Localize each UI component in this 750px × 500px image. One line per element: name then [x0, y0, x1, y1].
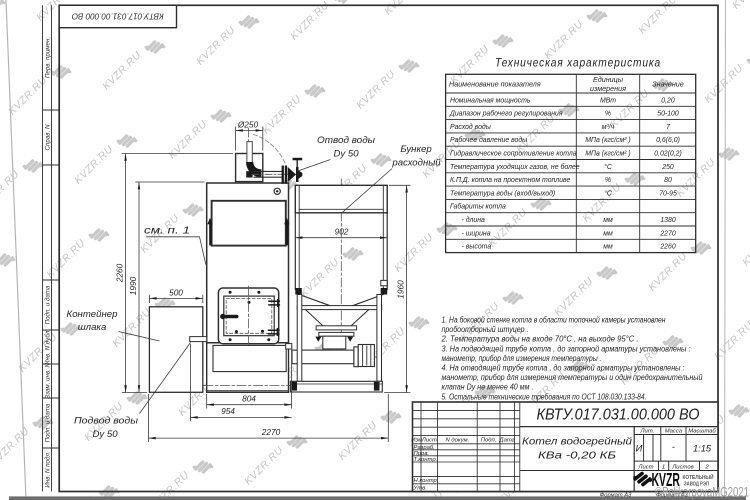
svg-text:KVZR.RU: KVZR.RU: [298, 256, 342, 300]
svg-text:Техническая характеристика: Техническая характеристика: [495, 56, 661, 70]
svg-text:Диапазон рабочего регулировани: Диапазон рабочего регулирования: [449, 110, 563, 118]
svg-text:KVZR.RU: KVZR.RU: [354, 68, 398, 112]
svg-text:1. На боковой стенке котла в: 1. На боковой стенке котла в области топ…: [442, 316, 667, 325]
svg-text:Расход воды: Расход воды: [450, 123, 491, 131]
svg-text:Контейнер: Контейнер: [67, 309, 119, 320]
svg-text:2: 2: [704, 464, 709, 470]
svg-text:Отвод воды: Отвод воды: [317, 135, 375, 146]
svg-text:©PolikarpovaMG2021: ©PolikarpovaMG2021: [655, 485, 749, 500]
svg-text:Утв.: Утв.: [413, 485, 427, 491]
svg-text:°С: °С: [604, 189, 613, 197]
svg-text:Справ. N: Справ. N: [45, 124, 52, 150]
svg-text:- высота: - высота: [462, 244, 492, 251]
svg-text:250: 250: [661, 164, 674, 171]
svg-text:Наименование показателя: Наименование показателя: [449, 80, 541, 89]
svg-text:KVZR.RU: KVZR.RU: [0, 425, 32, 469]
svg-text:2270: 2270: [261, 427, 281, 437]
svg-text:м³/ч: м³/ч: [602, 124, 615, 131]
svg-text:расходный: расходный: [391, 157, 441, 168]
svg-text:КВТУ.017.031.00.000 ВО: КВТУ.017.031.00.000 ВО: [537, 407, 700, 424]
svg-text:Лит.: Лит.: [640, 428, 655, 434]
svg-text:Масштаб: Масштаб: [688, 428, 716, 434]
svg-text:KVZR.RU: KVZR.RU: [552, 275, 596, 319]
svg-text:KVZR.RU: KVZR.RU: [194, 24, 238, 68]
svg-text:Инв. N дубл.: Инв. N дубл.: [45, 329, 52, 365]
svg-text:0,6(6,0): 0,6(6,0): [656, 137, 680, 144]
svg-text:шлака: шлака: [78, 322, 107, 333]
svg-text:KVZR.RU: KVZR.RU: [242, 444, 286, 488]
svg-text:Температура уходящих газов, не: Температура уходящих газов, не более: [450, 163, 580, 171]
svg-text:5. Остальные технические т: 5. Остальные технические требования по О…: [442, 392, 647, 401]
svg-text:KVZR.RU: KVZR.RU: [100, 49, 144, 93]
svg-text:Инв. N подл.: Инв. N подл.: [45, 451, 52, 487]
svg-text:7: 7: [666, 124, 671, 131]
svg-text:2. Температура воды на вх: 2. Температура воды на входе 70°С , на в…: [441, 335, 639, 344]
svg-text:KVZR.RU: KVZR.RU: [260, 93, 304, 137]
svg-text:Взам. инв. N: Взам. инв. N: [45, 362, 52, 399]
svg-text:0,02(0,2): 0,02(0,2): [654, 151, 682, 158]
svg-text:KVZR.RU: KVZR.RU: [16, 331, 60, 375]
svg-text:манометр, прибор для измере: манометр, прибор для измерения температу…: [442, 373, 704, 382]
svg-text:N докум.: N докум.: [445, 438, 469, 444]
svg-text:МПа (кгс/см² ): МПа (кгс/см² ): [585, 151, 630, 158]
svg-text:мм: мм: [603, 217, 613, 224]
svg-text:KVZR.RU: KVZR.RU: [382, 0, 426, 18]
svg-text:Масса: Масса: [665, 428, 683, 434]
svg-text:%: %: [605, 177, 611, 184]
svg-text:902: 902: [335, 226, 349, 236]
svg-text:3. На подводящей трубе ко: 3. На подводящей трубе котла , до запорн…: [442, 344, 691, 353]
svg-text:мм: мм: [603, 244, 613, 251]
svg-text:Подп. и дата: Подп. и дата: [45, 285, 52, 324]
svg-text:Гидравлическое сопротивление к: Гидравлическое сопротивление котла: [450, 150, 577, 158]
svg-text:KVZR.RU: KVZR.RU: [0, 168, 22, 212]
svg-text:- длина: - длина: [462, 216, 486, 224]
svg-text:%: %: [605, 111, 611, 118]
svg-text:Лист: Лист: [421, 438, 437, 444]
svg-text:KVZR.RU: KVZR.RU: [740, 225, 750, 269]
svg-text:Дата: Дата: [498, 438, 515, 444]
svg-text:Подп.: Подп.: [481, 438, 497, 444]
svg-text:70-95: 70-95: [659, 190, 677, 197]
svg-text:KVZR.RU: KVZR.RU: [392, 231, 436, 275]
svg-text:Dy 50: Dy 50: [333, 148, 359, 159]
svg-text:мм: мм: [603, 230, 613, 237]
svg-text:Бункер: Бункер: [400, 144, 432, 155]
svg-text:KVZR.RU: KVZR.RU: [148, 469, 192, 500]
svg-text:KVZR.RU: KVZR.RU: [702, 62, 746, 106]
svg-text:Н.контр.: Н.контр.: [414, 478, 439, 484]
svg-text:KVZR.RU: KVZR.RU: [166, 118, 210, 162]
svg-text:Формат А3: Формат А3: [600, 492, 632, 498]
svg-text:KVZR.RU: KVZR.RU: [646, 250, 690, 294]
svg-text:Котел водогрейный: Котел водогрейный: [522, 437, 632, 448]
svg-text:Изм: Изм: [411, 438, 422, 444]
svg-text:Единицы: Единицы: [593, 75, 624, 84]
svg-text:KVZR.RU: KVZR.RU: [514, 112, 558, 156]
svg-text:Габариты котла: Габариты котла: [450, 203, 506, 211]
svg-text:измерения: измерения: [590, 84, 626, 93]
svg-text:KVZR.RU: KVZR.RU: [6, 74, 50, 118]
svg-text:KVZR.RU: KVZR.RU: [608, 87, 652, 131]
svg-text:80: 80: [664, 177, 672, 184]
svg-text:°С: °С: [604, 163, 613, 171]
svg-text:К.П.Д. котла на проектном топл: К.П.Д. котла на проектном топливе: [450, 177, 570, 184]
svg-text:манометр, прибор для измере: манометр, прибор для измерения температу…: [442, 354, 602, 363]
svg-text:Температура воды (вход/выход): Температура воды (вход/выход): [450, 189, 555, 197]
svg-text:см. п. 1: см. п. 1: [144, 225, 190, 236]
svg-text:1990: 1990: [128, 276, 138, 295]
svg-text:2260: 2260: [115, 263, 125, 283]
svg-text:50-100: 50-100: [657, 111, 679, 118]
svg-text:2260: 2260: [659, 244, 675, 251]
svg-text:500: 500: [169, 288, 183, 298]
svg-text:Подвод воды: Подвод воды: [74, 415, 138, 426]
svg-text:- ширина: - ширина: [462, 230, 491, 237]
svg-text:МПа (кгс/см² ): МПа (кгс/см² ): [585, 137, 630, 144]
svg-text:1960: 1960: [395, 280, 405, 299]
svg-text:804: 804: [242, 394, 256, 404]
svg-text:4. На отводящей трубе кот: 4. На отводящей трубе котла , до запорно…: [442, 364, 685, 373]
svg-text:Dy 50: Dy 50: [92, 429, 118, 440]
svg-text:KVZR.RU: KVZR.RU: [288, 0, 332, 43]
svg-text:МВт: МВт: [600, 97, 616, 104]
svg-text:И: И: [636, 444, 643, 455]
svg-text:Подп. и дата: Подп. и дата: [45, 403, 52, 442]
svg-text:KVZR.RU: KVZR.RU: [44, 237, 88, 281]
svg-text:Рабочее давление воды: Рабочее давление воды: [450, 136, 527, 144]
svg-text:КОТЕЛЬНЫЙ: КОТЕЛЬНЫЙ: [683, 473, 714, 481]
svg-text:пробоотборный штуцер .: пробоотборный штуцер .: [442, 325, 529, 334]
svg-text:KVZR.RU: KVZR.RU: [72, 143, 116, 187]
svg-text:954: 954: [221, 406, 235, 416]
svg-text:1:15: 1:15: [693, 444, 712, 454]
svg-text:Номинальная мощность: Номинальная мощность: [450, 97, 531, 104]
svg-text:0,20: 0,20: [661, 97, 675, 104]
svg-text:КВТУ.017.031.00.000 ВО: КВТУ.017.031.00.000 ВО: [72, 12, 164, 22]
svg-text:Значение: Значение: [652, 80, 684, 89]
svg-text:клапан Dу не менее 40 мм: клапан Dу не менее 40 мм .: [442, 383, 534, 392]
svg-text:KVZR.RU: KVZR.RU: [730, 0, 750, 12]
svg-text:2270: 2270: [659, 230, 675, 237]
svg-text:Ø250: Ø250: [237, 120, 259, 130]
svg-text:КВа -0,20 КБ: КВа -0,20 КБ: [538, 451, 616, 462]
svg-text:-: -: [672, 442, 675, 452]
svg-text:1380: 1380: [660, 217, 675, 224]
svg-text:Т.контр.: Т.контр.: [414, 457, 438, 463]
svg-text:KVZR.RU: KVZR.RU: [580, 181, 624, 225]
svg-text:Пров.: Пров.: [414, 451, 430, 457]
svg-text:KVZR.RU: KVZR.RU: [336, 419, 380, 463]
svg-text:Перв. примен.: Перв. примен.: [45, 37, 52, 78]
